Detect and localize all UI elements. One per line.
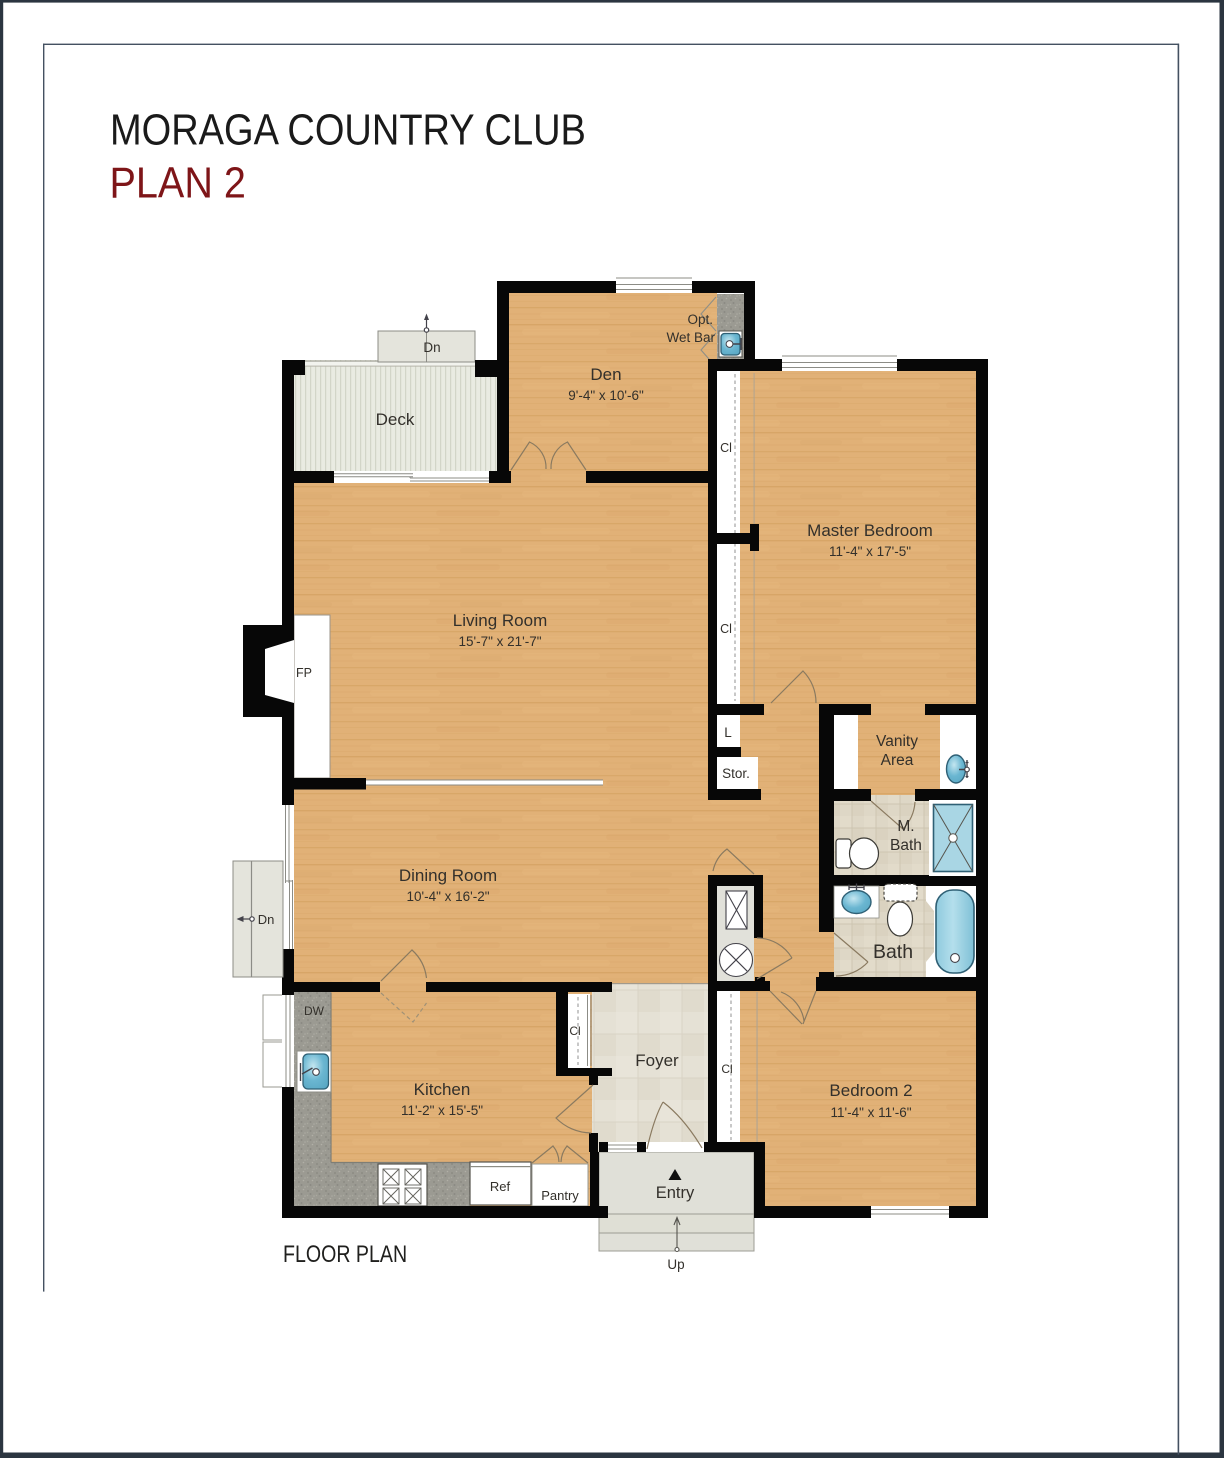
svg-text:Kitchen: Kitchen	[414, 1080, 471, 1099]
svg-text:Area: Area	[881, 752, 914, 769]
svg-text:15'-7" x 21'-7": 15'-7" x 21'-7"	[458, 634, 541, 649]
svg-text:Dn: Dn	[258, 912, 275, 927]
svg-text:DW: DW	[304, 1004, 325, 1018]
svg-text:Cl: Cl	[720, 622, 732, 636]
svg-text:Cl: Cl	[569, 1024, 580, 1038]
svg-text:Bath: Bath	[890, 837, 922, 854]
svg-text:FLOOR PLAN: FLOOR PLAN	[283, 1240, 407, 1268]
svg-text:11'-4" x 17'-5": 11'-4" x 17'-5"	[829, 544, 911, 559]
svg-text:Wet Bar: Wet Bar	[666, 330, 715, 345]
svg-text:M.: M.	[897, 818, 914, 835]
svg-text:Dn: Dn	[423, 340, 440, 355]
svg-text:10'-4" x 16'-2": 10'-4" x 16'-2"	[406, 889, 489, 904]
svg-text:Bath: Bath	[873, 941, 913, 963]
svg-text:Bedroom 2: Bedroom 2	[829, 1081, 912, 1100]
svg-text:Vanity: Vanity	[876, 733, 918, 750]
svg-text:Entry: Entry	[656, 1184, 695, 1202]
svg-text:Cl: Cl	[721, 1062, 732, 1076]
svg-text:Cl: Cl	[720, 441, 732, 455]
svg-text:Deck: Deck	[376, 410, 415, 429]
svg-text:Dining Room: Dining Room	[399, 866, 497, 885]
svg-text:Pantry: Pantry	[541, 1188, 579, 1203]
svg-text:11'-2" x 15'-5": 11'-2" x 15'-5"	[401, 1103, 483, 1118]
svg-text:MORAGA COUNTRY CLUB: MORAGA COUNTRY CLUB	[110, 105, 586, 154]
svg-text:Den: Den	[590, 365, 621, 384]
svg-text:FP: FP	[296, 666, 312, 680]
svg-text:Master Bedroom: Master Bedroom	[807, 521, 933, 540]
svg-text:Foyer: Foyer	[635, 1051, 679, 1070]
svg-text:L: L	[724, 725, 732, 740]
svg-text:Living Room: Living Room	[453, 611, 548, 630]
svg-text:9'-4" x 10'-6": 9'-4" x 10'-6"	[568, 388, 644, 403]
svg-text:Stor.: Stor.	[722, 766, 750, 781]
svg-text:PLAN 2: PLAN 2	[110, 158, 246, 207]
svg-text:11'-4" x 11'-6": 11'-4" x 11'-6"	[830, 1105, 911, 1120]
svg-text:Opt.: Opt.	[687, 312, 713, 327]
svg-text:Up: Up	[667, 1257, 684, 1272]
svg-text:Ref: Ref	[490, 1179, 511, 1194]
